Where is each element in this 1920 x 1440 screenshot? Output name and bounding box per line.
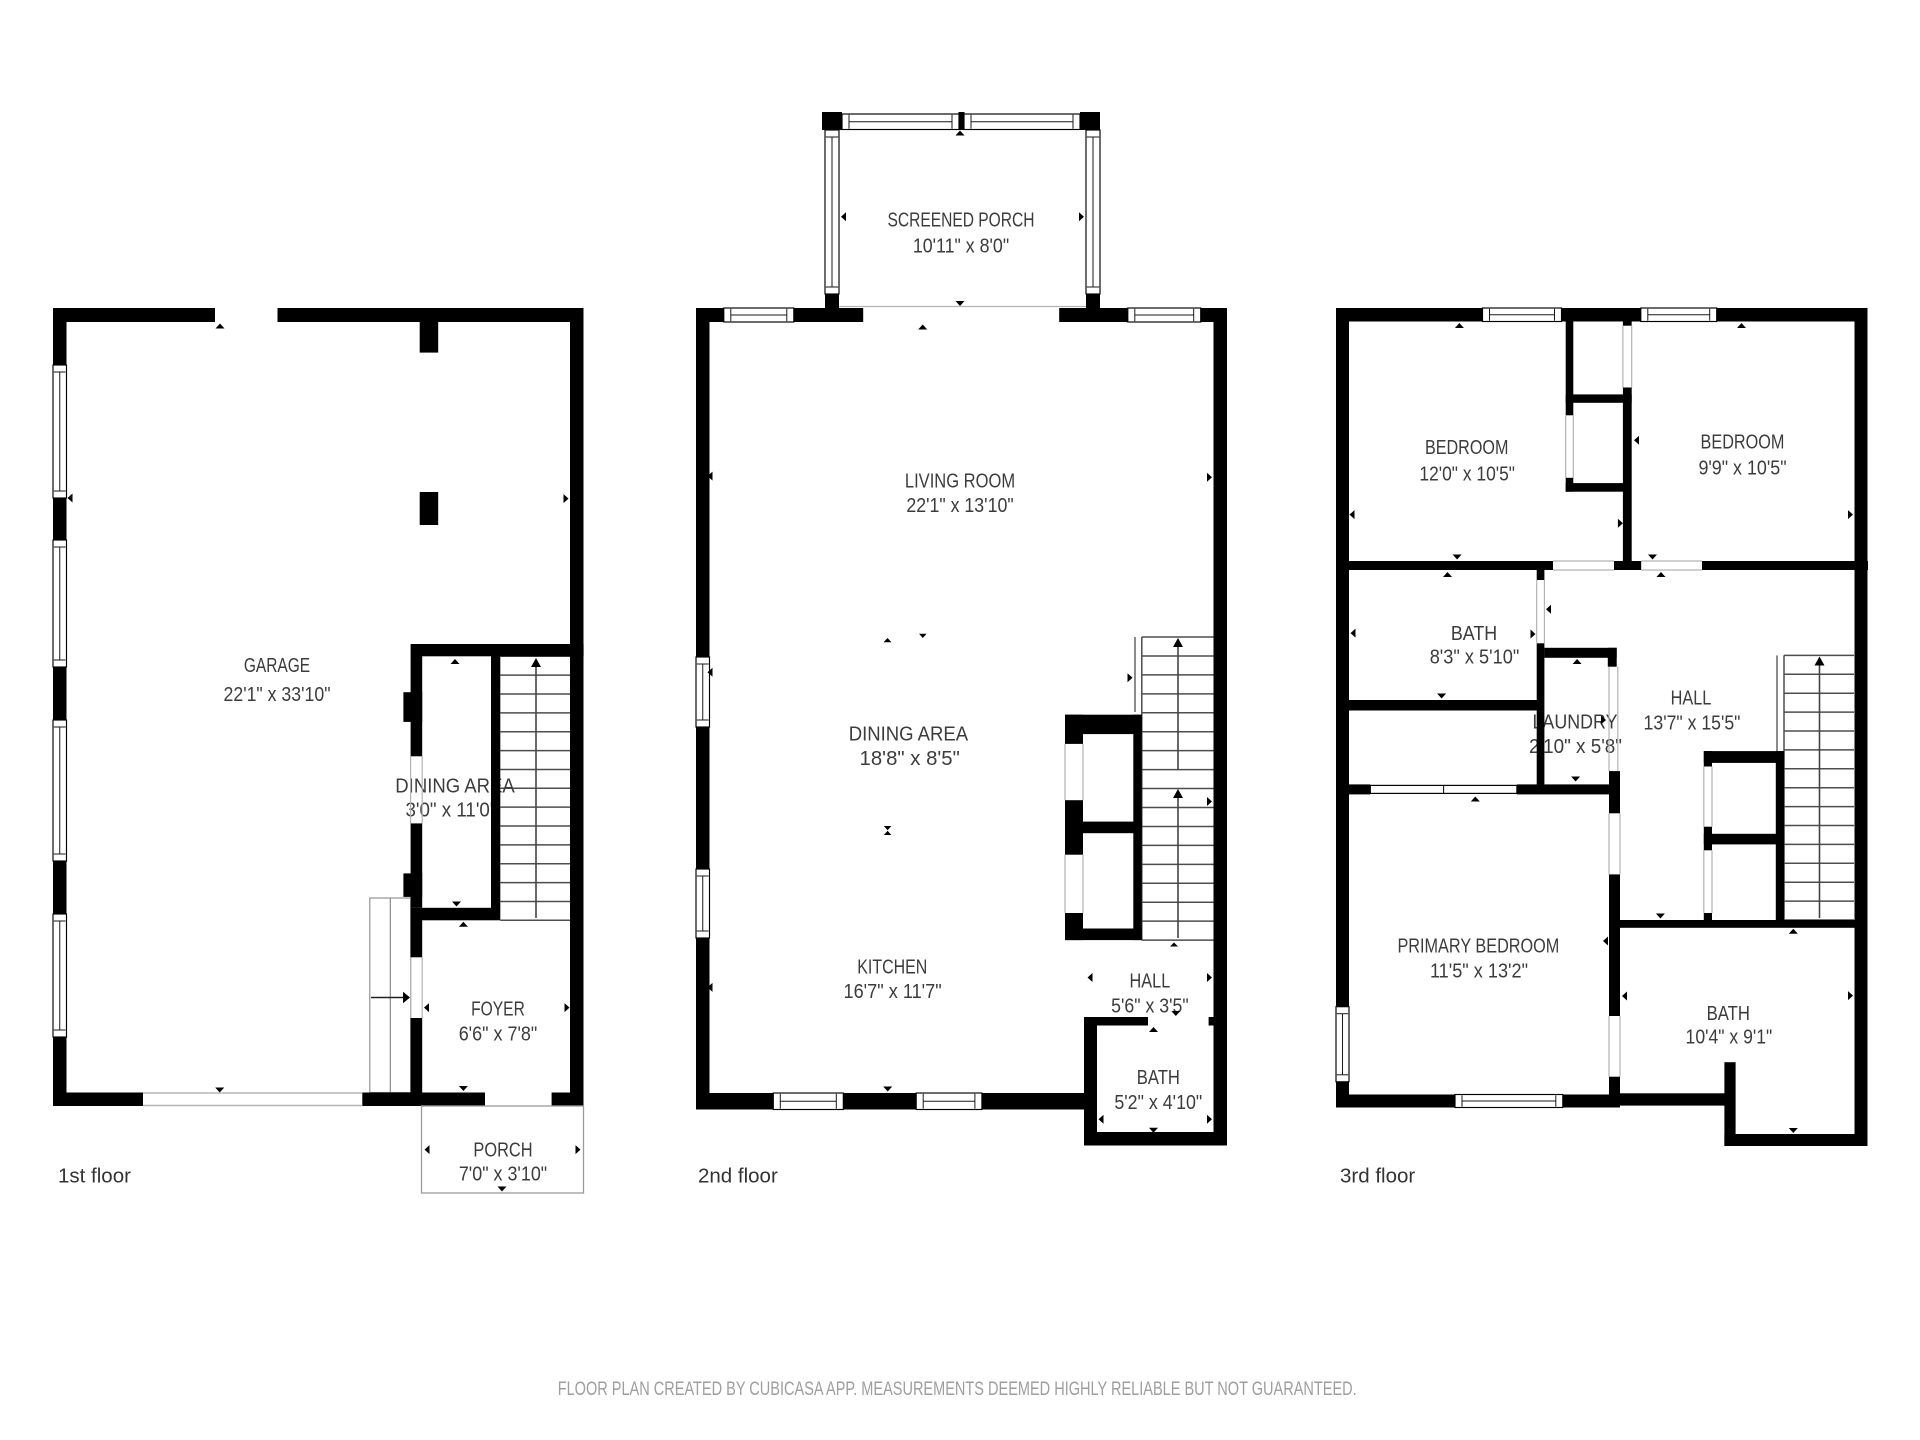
svg-text:HALL: HALL — [1130, 970, 1171, 993]
svg-text:LAUNDRY: LAUNDRY — [1533, 711, 1618, 734]
svg-text:BEDROOM: BEDROOM — [1425, 436, 1508, 459]
svg-text:18'8" x 8'5": 18'8" x 8'5" — [860, 747, 960, 770]
svg-text:11'5" x 13'2": 11'5" x 13'2" — [1430, 960, 1528, 983]
svg-text:HALL: HALL — [1671, 687, 1712, 710]
svg-text:1st floor: 1st floor — [58, 1165, 131, 1188]
svg-text:22'1" x 13'10": 22'1" x 13'10" — [906, 494, 1013, 517]
svg-text:3'0" x 11'0": 3'0" x 11'0" — [406, 799, 497, 822]
svg-text:BATH: BATH — [1707, 1002, 1750, 1025]
svg-text:BATH: BATH — [1451, 622, 1497, 645]
svg-text:LIVING ROOM: LIVING ROOM — [905, 470, 1015, 493]
svg-text:22'1" x 33'10": 22'1" x 33'10" — [224, 683, 331, 706]
svg-text:8'3" x 5'10": 8'3" x 5'10" — [1430, 646, 1520, 669]
svg-text:7'0" x 3'10": 7'0" x 3'10" — [459, 1163, 547, 1186]
svg-text:DINING AREA: DINING AREA — [849, 723, 969, 746]
svg-text:KITCHEN: KITCHEN — [857, 955, 927, 978]
svg-text:9'9" x 10'5": 9'9" x 10'5" — [1698, 457, 1786, 480]
svg-text:PORCH: PORCH — [473, 1139, 532, 1162]
svg-text:BATH: BATH — [1137, 1066, 1180, 1089]
svg-text:13'7" x 15'5": 13'7" x 15'5" — [1644, 712, 1741, 735]
svg-text:5'2" x 4'10": 5'2" x 4'10" — [1114, 1091, 1202, 1114]
svg-text:BEDROOM: BEDROOM — [1701, 431, 1785, 454]
svg-text:6'6" x 7'8": 6'6" x 7'8" — [459, 1023, 538, 1046]
svg-text:GARAGE: GARAGE — [244, 654, 310, 677]
svg-text:2nd floor: 2nd floor — [698, 1165, 778, 1188]
svg-text:16'7" x 11'7": 16'7" x 11'7" — [844, 980, 942, 1003]
svg-text:FOYER: FOYER — [471, 998, 525, 1021]
svg-text:3rd floor: 3rd floor — [1340, 1165, 1415, 1188]
svg-text:FLOOR PLAN CREATED BY CUBICASA: FLOOR PLAN CREATED BY CUBICASA APP. MEAS… — [558, 1379, 1357, 1400]
svg-text:12'0" x 10'5": 12'0" x 10'5" — [1419, 462, 1515, 485]
svg-text:10'11" x 8'0": 10'11" x 8'0" — [913, 235, 1009, 258]
svg-text:10'4" x 9'1": 10'4" x 9'1" — [1686, 1026, 1773, 1049]
svg-text:PRIMARY BEDROOM: PRIMARY BEDROOM — [1397, 934, 1559, 957]
svg-text:SCREENED PORCH: SCREENED PORCH — [887, 209, 1034, 232]
